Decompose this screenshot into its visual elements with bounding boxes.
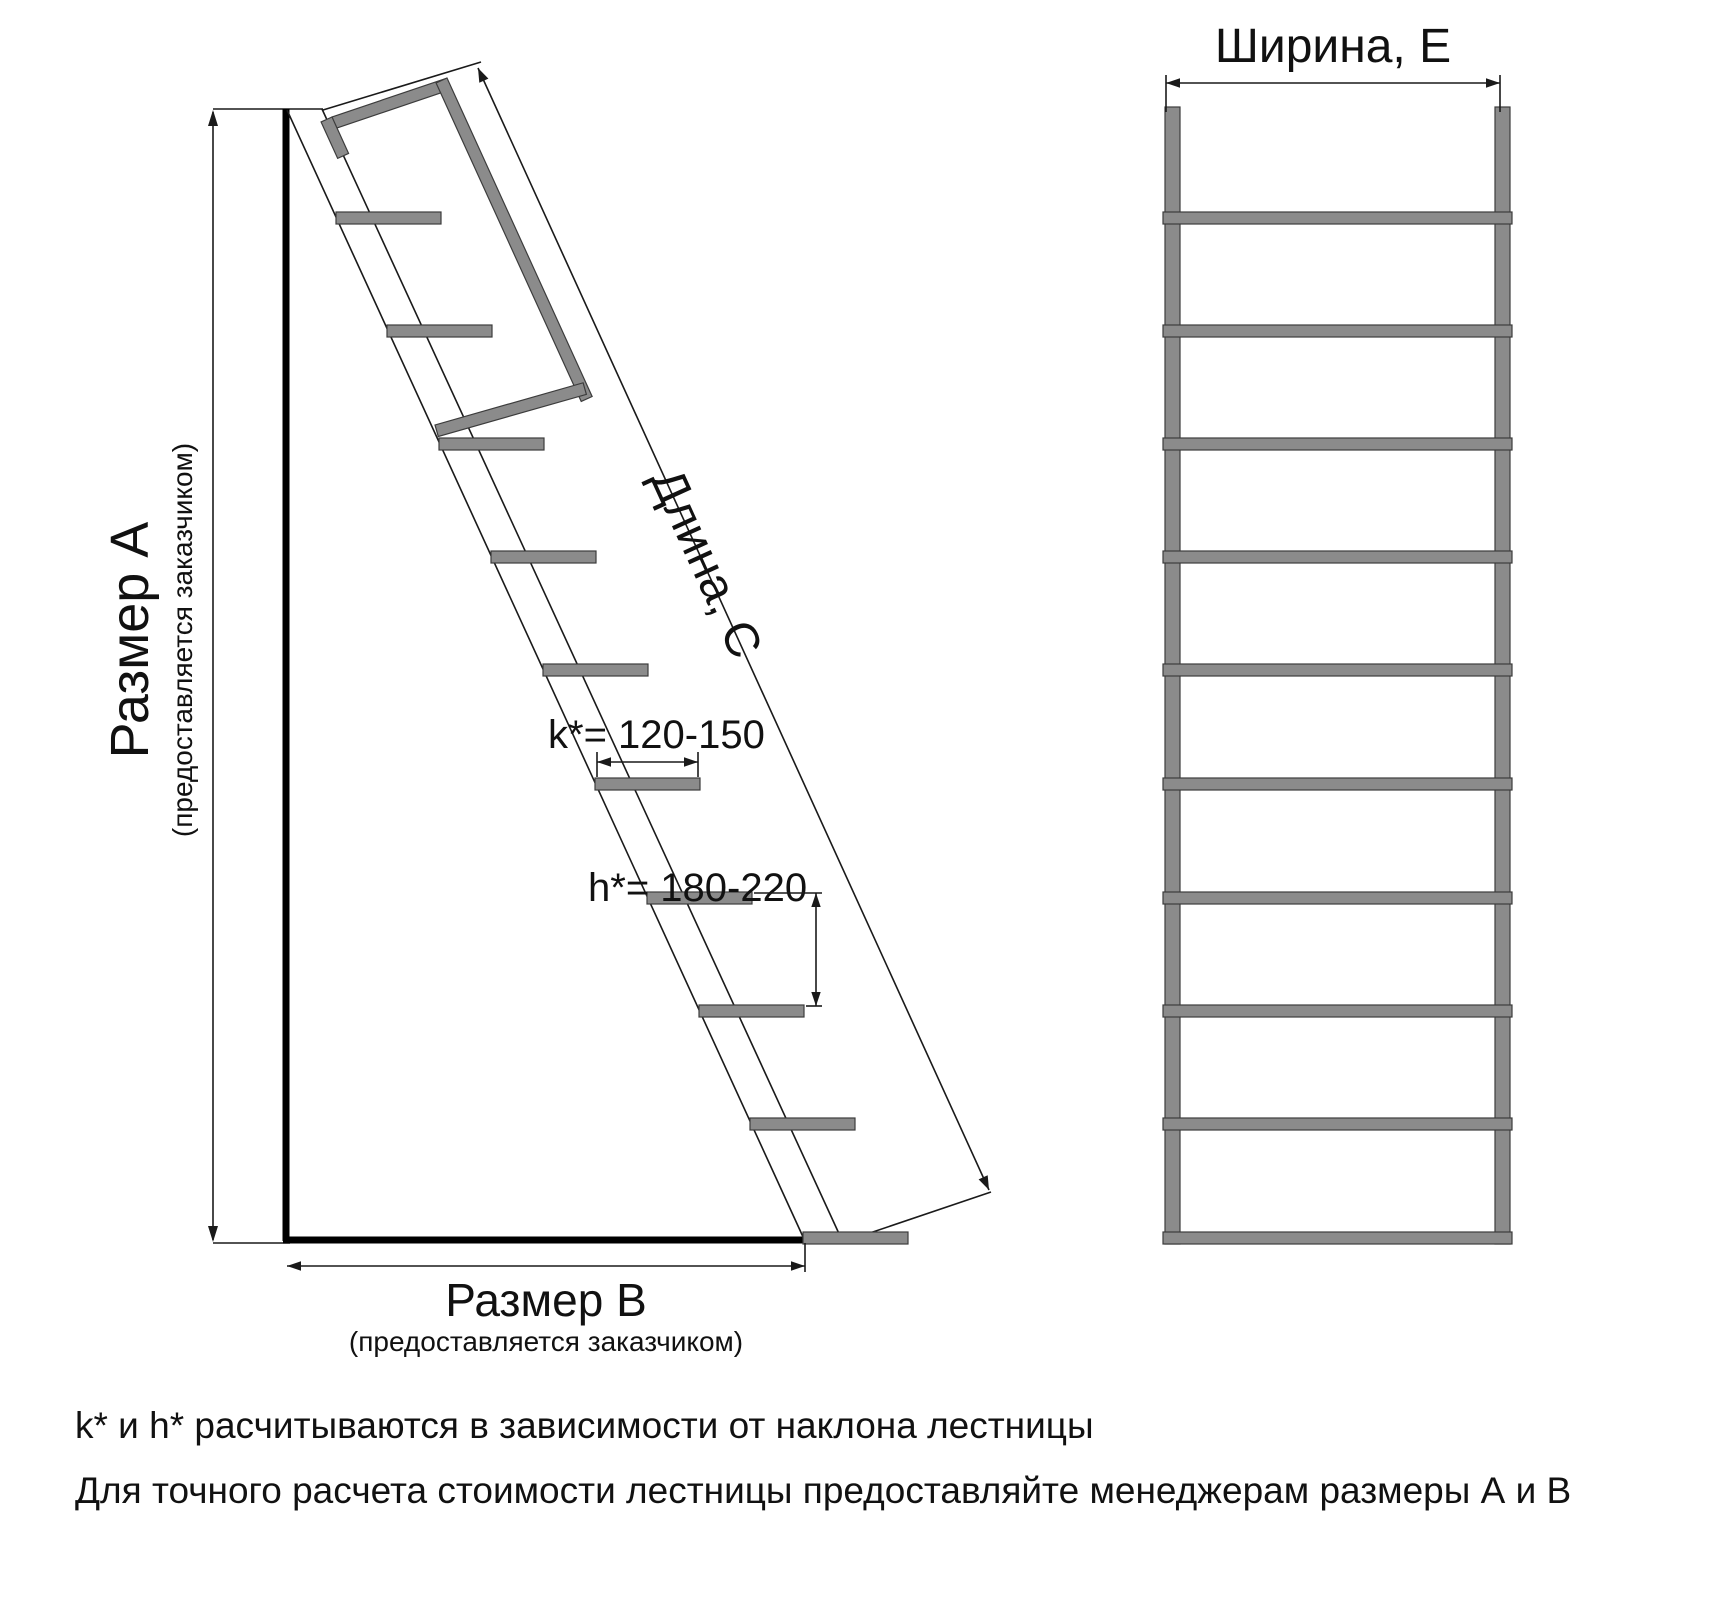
arrow-down-icon [208, 1226, 218, 1242]
ladder-rung [1163, 778, 1512, 790]
arrow-left-icon [597, 757, 611, 766]
width-label: Ширина, Е [1215, 20, 1451, 73]
size-a-label: Размер А [100, 522, 160, 759]
ladder-rung [1163, 438, 1512, 450]
h-dimension: h*= 180-220 [588, 866, 822, 1006]
arrow-up-icon [811, 893, 820, 907]
ladder-rungs [1163, 212, 1512, 1244]
arrow-right-icon [1486, 78, 1500, 87]
stair-dimension-diagram: Размер А (предоставляется заказчиком) Дл… [0, 0, 1721, 1600]
ladder-rung [1163, 1118, 1512, 1130]
k-dimension: k*= 120-150 [548, 713, 765, 777]
arrow-down-icon [811, 992, 820, 1006]
front-view: Ширина, Е [1163, 20, 1512, 1244]
arrow-upslope-icon [478, 68, 488, 83]
hatch-frame [321, 78, 592, 437]
ladder-rung [1163, 212, 1512, 224]
length-dimension: Длина, С [323, 62, 991, 1238]
hatch-frame-top-bar [332, 78, 450, 128]
stair-tread [595, 778, 700, 790]
stair-tread [699, 1005, 804, 1017]
size-b-label: Размер В [445, 1274, 647, 1326]
dimension-a: Размер А (предоставляется заказчиком) [100, 109, 323, 1243]
size-b-note: (предоставляется заказчиком) [349, 1326, 743, 1357]
footnote-line2: Для точного расчета стоимости лестницы п… [75, 1470, 1571, 1511]
diagram-canvas: Размер А (предоставляется заказчиком) Дл… [0, 0, 1721, 1600]
arrow-left-icon [287, 1261, 301, 1270]
ladder-rung [1163, 664, 1512, 676]
arrow-left-icon [1166, 78, 1180, 87]
arrow-downslope-icon [979, 1175, 989, 1190]
hatch-frame-right-bar [436, 78, 592, 401]
h-dimension-label: h*= 180-220 [588, 866, 807, 910]
hatch-frame-bottom-bar [435, 383, 586, 437]
dimension-b: Размер В (предоставляется заказчиком) [287, 1243, 805, 1357]
stair-tread [803, 1232, 908, 1244]
ladder-rung [1163, 892, 1512, 904]
size-a-note: (предоставляется заказчиком) [167, 443, 198, 837]
footnotes: k* и h* расчитываются в зависимости от н… [75, 1405, 1571, 1511]
stair-tread [491, 551, 596, 563]
ladder-rung [1163, 551, 1512, 563]
stair-tread [750, 1118, 855, 1130]
ladder-rung [1163, 1232, 1512, 1244]
k-dimension-label: k*= 120-150 [548, 713, 765, 757]
length-label: Длина, С [640, 461, 772, 667]
arrow-up-icon [208, 110, 218, 126]
footnote-line1: k* и h* расчитываются в зависимости от н… [75, 1405, 1094, 1446]
ladder-rung [1163, 1005, 1512, 1017]
ladder-rung [1163, 325, 1512, 337]
arrow-right-icon [684, 757, 698, 766]
width-dimension: Ширина, Е [1166, 20, 1500, 112]
length-bottom-extension [855, 1192, 991, 1238]
arrow-right-icon [791, 1261, 805, 1270]
left-elevation-view: Размер А (предоставляется заказчиком) Дл… [100, 62, 991, 1357]
stair-tread [439, 438, 544, 450]
stair-tread [387, 325, 492, 337]
stair-tread [543, 664, 648, 676]
stair-tread [336, 212, 441, 224]
